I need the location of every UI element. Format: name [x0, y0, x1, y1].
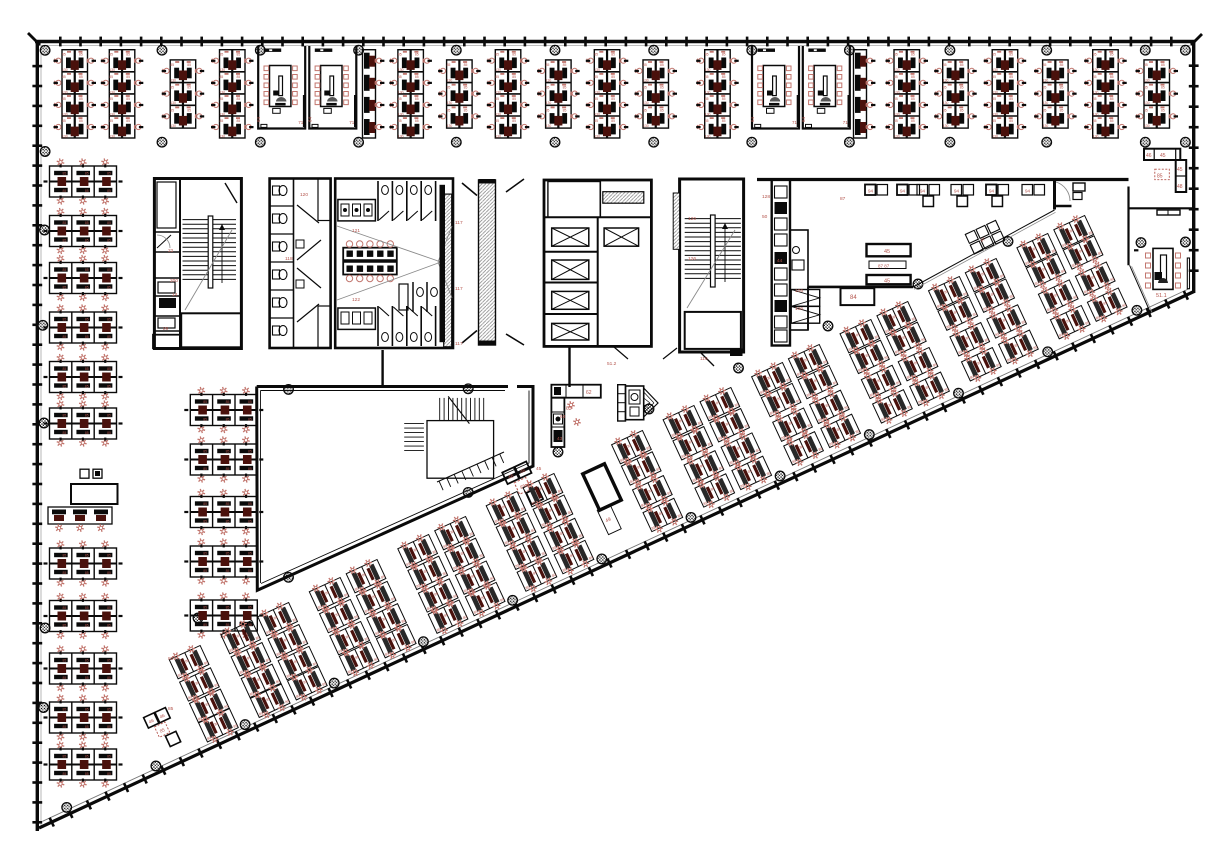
svg-text:64: 64	[750, 116, 755, 122]
svg-text:64: 64	[307, 116, 312, 122]
svg-text:46: 46	[524, 483, 530, 489]
svg-text:29: 29	[163, 326, 169, 332]
svg-text:200: 200	[170, 278, 178, 284]
svg-text:48: 48	[1177, 184, 1183, 190]
svg-text:126: 126	[688, 256, 696, 262]
svg-text:94: 94	[954, 189, 960, 194]
svg-text:87: 87	[840, 196, 846, 202]
svg-text:126: 126	[688, 216, 696, 222]
svg-text:51.2: 51.2	[607, 361, 617, 367]
svg-text:117: 117	[455, 220, 463, 226]
svg-text:116: 116	[700, 356, 708, 362]
svg-text:71: 71	[843, 120, 849, 125]
svg-text:121: 121	[352, 228, 360, 234]
svg-text:87: 87	[980, 236, 987, 243]
svg-text:118: 118	[285, 256, 293, 262]
svg-text:45: 45	[1177, 167, 1183, 173]
svg-text:62: 62	[586, 390, 592, 396]
svg-text:85: 85	[159, 727, 166, 734]
svg-text:64: 64	[801, 116, 806, 122]
svg-text:94: 94	[900, 189, 906, 194]
svg-text:94: 94	[989, 189, 995, 194]
svg-text:85: 85	[168, 706, 174, 712]
svg-text:120: 120	[300, 192, 308, 198]
svg-text:94: 94	[1025, 189, 1031, 194]
svg-text:122: 122	[352, 297, 360, 303]
svg-text:94: 94	[868, 189, 874, 194]
svg-text:51.1: 51.1	[1156, 293, 1167, 299]
svg-text:63: 63	[560, 414, 566, 420]
svg-text:71: 71	[349, 120, 355, 125]
svg-text:45: 45	[1160, 153, 1166, 159]
svg-text:106: 106	[795, 288, 803, 294]
svg-text:94: 94	[920, 189, 926, 194]
svg-text:46: 46	[159, 713, 166, 720]
svg-text:44: 44	[777, 258, 783, 264]
svg-text:117: 117	[455, 341, 463, 347]
svg-text:45: 45	[884, 279, 890, 285]
svg-text:49: 49	[605, 516, 613, 524]
svg-text:84: 84	[850, 295, 857, 301]
svg-text:85: 85	[168, 656, 174, 662]
svg-text:46: 46	[1146, 153, 1152, 159]
svg-text:128: 128	[762, 194, 770, 200]
svg-text:43: 43	[557, 436, 563, 442]
svg-text:50: 50	[762, 214, 768, 220]
svg-text:117: 117	[455, 286, 463, 292]
svg-text:46: 46	[148, 718, 155, 725]
svg-text:71: 71	[792, 120, 798, 125]
svg-text:22: 22	[168, 248, 174, 254]
svg-text:64: 64	[256, 116, 261, 122]
svg-text:63: 63	[566, 406, 572, 412]
svg-text:87 87: 87 87	[878, 264, 890, 269]
svg-text:14: 14	[172, 292, 178, 298]
svg-text:45: 45	[536, 466, 542, 472]
svg-text:45: 45	[884, 249, 890, 255]
svg-text:85: 85	[1157, 174, 1163, 180]
svg-text:71: 71	[298, 120, 304, 125]
svg-text:106: 106	[795, 306, 803, 312]
